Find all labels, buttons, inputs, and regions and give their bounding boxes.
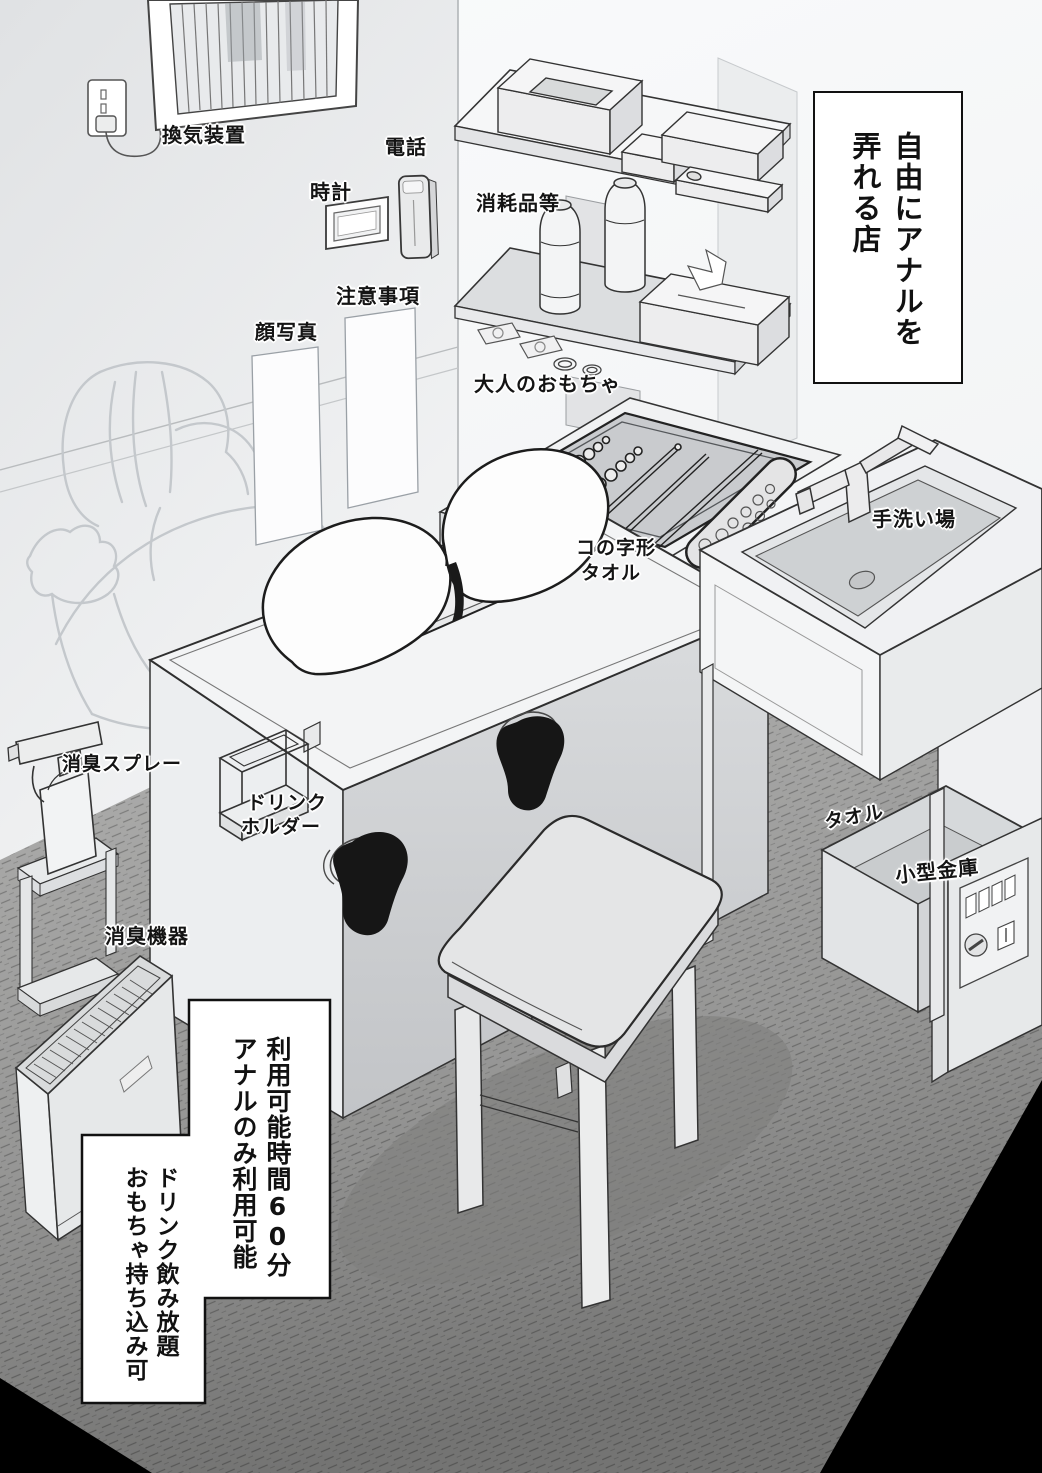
title-box: 自由にアナルを 弄れる店 <box>813 91 963 384</box>
info2-line-2: おもちゃ持ち込み可 <box>118 1166 149 1403</box>
wall-phone <box>399 175 439 259</box>
label-u-towel-2: タオル <box>581 558 641 585</box>
info-box-1: 利用可能時間60分 アナルのみ利用可能 <box>189 1000 330 1298</box>
title-line-2: 弄れる店 <box>844 131 886 382</box>
label-drink-1: ドリンク <box>247 788 327 815</box>
label-deodorizer: 消臭機器 <box>105 920 189 949</box>
label-adult-toys: 大人のおもちゃ <box>474 368 621 397</box>
window-vent <box>148 0 358 130</box>
title-line-1: 自由にアナルを <box>886 131 928 382</box>
info-box-2: ドリンク飲み放題 おもちゃ持ち込み可 <box>82 1135 205 1403</box>
face-photo-sheet <box>252 347 322 545</box>
info2-line-1: ドリンク飲み放題 <box>149 1166 180 1403</box>
label-phone: 電話 <box>385 131 427 160</box>
label-face-photo: 顔写真 <box>255 316 318 345</box>
title-text: 自由にアナルを 弄れる店 <box>815 93 961 382</box>
label-drink-2: ホルダー <box>241 812 321 839</box>
notice-sheet <box>345 308 418 508</box>
label-u-towel-1: コの字形 <box>576 533 656 560</box>
label-spray: 消臭スプレー <box>62 749 182 776</box>
label-notice: 注意事項 <box>336 280 420 309</box>
info1-line-1: 利用可能時間60分 <box>260 1036 294 1298</box>
room-illustration: 換気装置 時計 電話 注意事項 顔写真 消耗品等 大人のおもちゃ コの字形 タオ… <box>0 0 1042 1473</box>
info1-line-2: アナルのみ利用可能 <box>226 1036 260 1298</box>
sink-front-leg <box>930 788 944 1022</box>
label-ventilation: 換気装置 <box>162 119 246 148</box>
label-clock: 時計 <box>310 176 352 205</box>
label-consumables: 消耗品等 <box>476 187 560 216</box>
label-hand-wash: 手洗い場 <box>872 503 956 532</box>
